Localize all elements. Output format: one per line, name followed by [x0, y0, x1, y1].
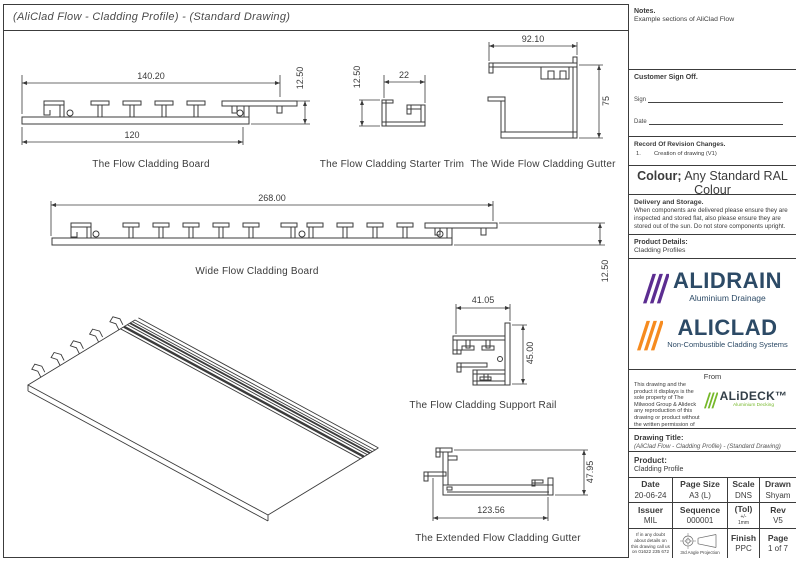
- product-details-section: Product Details: Cladding Profiles: [629, 235, 796, 259]
- product-details-value: Cladding Profiles: [634, 247, 791, 254]
- colour-section: Colour; Any Standard RAL Colour: [629, 166, 796, 195]
- title-block-table: Date 20-06-24 Page Size A3 (L) Scale DNS…: [629, 478, 796, 558]
- aliclad-stripes-icon: [637, 314, 663, 352]
- wide-gutter-dimensions: 92.10 75: [489, 34, 611, 138]
- drawing-sheet: (AliClad Flow - Cladding Profile) - (Sta…: [0, 0, 800, 566]
- product-value: Cladding Profile: [634, 466, 791, 473]
- aliclad-logo: ALICLAD Non-Combustible Cladding Systems: [634, 314, 791, 352]
- doubt-note-text: If in any doubt about details on this dr…: [629, 532, 672, 555]
- dim-label: 268.00: [258, 193, 286, 203]
- dim-label: 47.95: [585, 461, 595, 484]
- wide-board-profile: [52, 223, 497, 245]
- starter-trim-profile: [382, 100, 425, 126]
- rev-cell-value: V5: [773, 516, 783, 525]
- sign-line[interactable]: [648, 95, 783, 103]
- drawing-title-section: Drawing Title: (AliClad Flow - Cladding …: [629, 429, 796, 452]
- tolerance-cell: (Tol) +/- 1mm: [727, 502, 759, 528]
- delivery-heading: Delivery and Storage.: [634, 199, 791, 206]
- extended-gutter-profile: [424, 448, 553, 495]
- revision-item: 1. Creation of drawing (V1): [634, 151, 791, 157]
- flow-cladding-board-drawing: 140.20 120 12.50 The Flow Cladding Board: [22, 67, 310, 170]
- flow-cladding-starter-trim-drawing: 22 12.50 The Flow Cladding Starter Trim: [320, 66, 464, 170]
- dim-label: 41.05: [472, 295, 495, 305]
- dim-label: 12.50: [295, 67, 305, 90]
- ownership-section: From This drawing and the product it dis…: [629, 370, 796, 429]
- wide-flow-cladding-gutter-drawing: 92.10 75 The Wide Flow Cladding Gutter: [470, 34, 616, 170]
- starter-trim-dimensions: 22 12.50: [352, 66, 425, 126]
- page-size-cell-label: Page Size: [680, 480, 720, 490]
- title-block-sidebar: Notes. Example sections of AliClad Flow …: [628, 4, 796, 558]
- iso-view-3d: [28, 317, 378, 521]
- alideck-logo: ALiDECK™ Aluminium Decking: [700, 388, 791, 410]
- delivery-body: When components are delivered please ens…: [634, 207, 791, 231]
- customer-sign-off-section: Customer Sign Off. Sign Date: [629, 70, 796, 137]
- colour-heading: Colour;: [637, 169, 681, 183]
- sheet-title-bar: (AliClad Flow - Cladding Profile) - (Sta…: [3, 4, 629, 31]
- legal-text: This drawing and the product it displays…: [634, 382, 700, 429]
- drawn-cell-label: Drawn: [765, 480, 791, 490]
- revision-text: Creation of drawing (V1): [654, 151, 717, 157]
- scale-cell: Scale DNS: [727, 478, 759, 502]
- finish-cell-value: PPC: [735, 544, 751, 553]
- finish-cell: Finish PPC: [727, 528, 759, 558]
- third-angle-projection-icon: [680, 533, 720, 549]
- sequence-cell-label: Sequence: [680, 506, 720, 516]
- alidrain-wordmark: ALIDRAIN: [673, 270, 782, 292]
- page-number-cell-label: Page: [768, 534, 788, 544]
- product-section: Product: Cladding Profile: [629, 452, 796, 478]
- dim-label: 120: [124, 130, 139, 140]
- scale-cell-value: DNS: [735, 491, 752, 500]
- extended-flow-cladding-gutter-drawing: 47.95 123.56 The Extended Flow Cladding …: [415, 448, 595, 544]
- wide-gutter-profile: [488, 57, 577, 138]
- wide-flow-cladding-board-drawing: 268.00 12.50 Wide Flow Cladding Board: [51, 193, 610, 282]
- extended-gutter-caption: The Extended Flow Cladding Gutter: [415, 533, 581, 544]
- support-rail-profile: [453, 323, 510, 385]
- dim-label: 45.00: [525, 342, 535, 365]
- dim-label: 75: [601, 96, 611, 106]
- flow-cladding-support-rail-drawing: 41.05 45.00 The Flow Cladding Support Ra…: [409, 295, 556, 411]
- alidrain-logo: ALIDRAIN Aluminium Drainage: [634, 267, 791, 305]
- date-cell: Date 20-06-24: [629, 478, 672, 502]
- sign-off-heading: Customer Sign Off.: [634, 74, 791, 81]
- flow-board-profile: [22, 101, 297, 124]
- wide-gutter-caption: The Wide Flow Cladding Gutter: [470, 159, 616, 170]
- alidrain-tagline: Aluminium Drainage: [689, 293, 766, 303]
- date-label: Date: [634, 119, 647, 125]
- rev-cell-label: Rev: [770, 506, 786, 516]
- sequence-cell: Sequence 000001: [672, 502, 727, 528]
- logos-section: ALIDRAIN Aluminium Drainage ALICLAD Non-…: [629, 259, 796, 370]
- issuer-cell-value: MIL: [644, 516, 657, 525]
- date-line[interactable]: [649, 117, 783, 125]
- page-size-cell-value: A3 (L): [689, 491, 711, 500]
- alidrain-stripes-icon: [643, 267, 669, 305]
- drawn-cell: Drawn Shyam: [759, 478, 796, 502]
- tolerance-cell-label: (Tol): [735, 505, 753, 515]
- date-cell-value: 20-06-24: [634, 491, 666, 500]
- drawing-title-heading: Drawing Title:: [634, 433, 791, 442]
- projection-label: 3rd Angle Projection: [680, 550, 719, 555]
- sign-field[interactable]: Sign: [634, 95, 791, 103]
- notes-section: Notes. Example sections of AliClad Flow: [629, 4, 796, 70]
- notes-body: Example sections of AliClad Flow: [634, 16, 791, 23]
- sign-label: Sign: [634, 97, 646, 103]
- product-details-heading: Product Details:: [634, 239, 791, 246]
- page-size-cell: Page Size A3 (L): [672, 478, 727, 502]
- date-field[interactable]: Date: [634, 117, 791, 125]
- dim-label: 22: [399, 70, 409, 80]
- alideck-wordmark: ALiDECK™: [720, 390, 788, 402]
- support-rail-caption: The Flow Cladding Support Rail: [409, 400, 556, 411]
- alideck-stripes-icon: [704, 388, 718, 410]
- revision-heading: Record Of Revision Changes.: [634, 141, 791, 148]
- doubt-note-cell: If in any doubt about details on this dr…: [629, 528, 672, 558]
- wide-board-caption: Wide Flow Cladding Board: [195, 266, 318, 277]
- tolerance-cell-value: +/- 1mm: [736, 515, 752, 526]
- notes-heading: Notes.: [634, 8, 791, 15]
- sheet-title: (AliClad Flow - Cladding Profile) - (Sta…: [3, 11, 290, 23]
- from-label: From: [634, 372, 791, 381]
- scale-cell-label: Scale: [732, 480, 754, 490]
- aliclad-tagline: Non-Combustible Cladding Systems: [667, 340, 787, 349]
- alideck-tagline: Aluminium Decking: [733, 403, 774, 408]
- sequence-cell-value: 000001: [687, 516, 714, 525]
- page-number-cell: Page 1 of 7: [759, 528, 796, 558]
- dim-label: 123.56: [477, 505, 505, 515]
- rev-cell: Rev V5: [759, 502, 796, 528]
- page-number-cell-value: 1 of 7: [768, 544, 788, 553]
- starter-trim-caption: The Flow Cladding Starter Trim: [320, 159, 464, 170]
- colour-value: Any Standard RAL Colour: [684, 169, 788, 195]
- product-heading: Product:: [634, 456, 791, 465]
- revision-number: 1.: [636, 151, 654, 157]
- drawing-title-value: (AliClad Flow - Cladding Profile) - (Sta…: [634, 443, 791, 450]
- finish-cell-label: Finish: [731, 534, 756, 544]
- drawing-canvas: 140.20 120 12.50 The Flow Cladding Board: [3, 31, 627, 558]
- issuer-cell-label: Issuer: [638, 506, 663, 516]
- dim-label: 140.20: [137, 71, 165, 81]
- dim-label: 92.10: [522, 34, 545, 44]
- dim-label: 12.50: [352, 66, 362, 89]
- flow-board-caption: The Flow Cladding Board: [92, 159, 209, 170]
- projection-cell: 3rd Angle Projection: [672, 528, 727, 558]
- delivery-storage-section: Delivery and Storage. When components ar…: [629, 195, 796, 235]
- dim-label: 12.50: [600, 260, 610, 283]
- issuer-cell: Issuer MIL: [629, 502, 672, 528]
- revision-record-section: Record Of Revision Changes. 1. Creation …: [629, 137, 796, 166]
- date-cell-label: Date: [641, 480, 659, 490]
- aliclad-wordmark: ALICLAD: [677, 317, 777, 339]
- drawn-cell-value: Shyam: [766, 491, 791, 500]
